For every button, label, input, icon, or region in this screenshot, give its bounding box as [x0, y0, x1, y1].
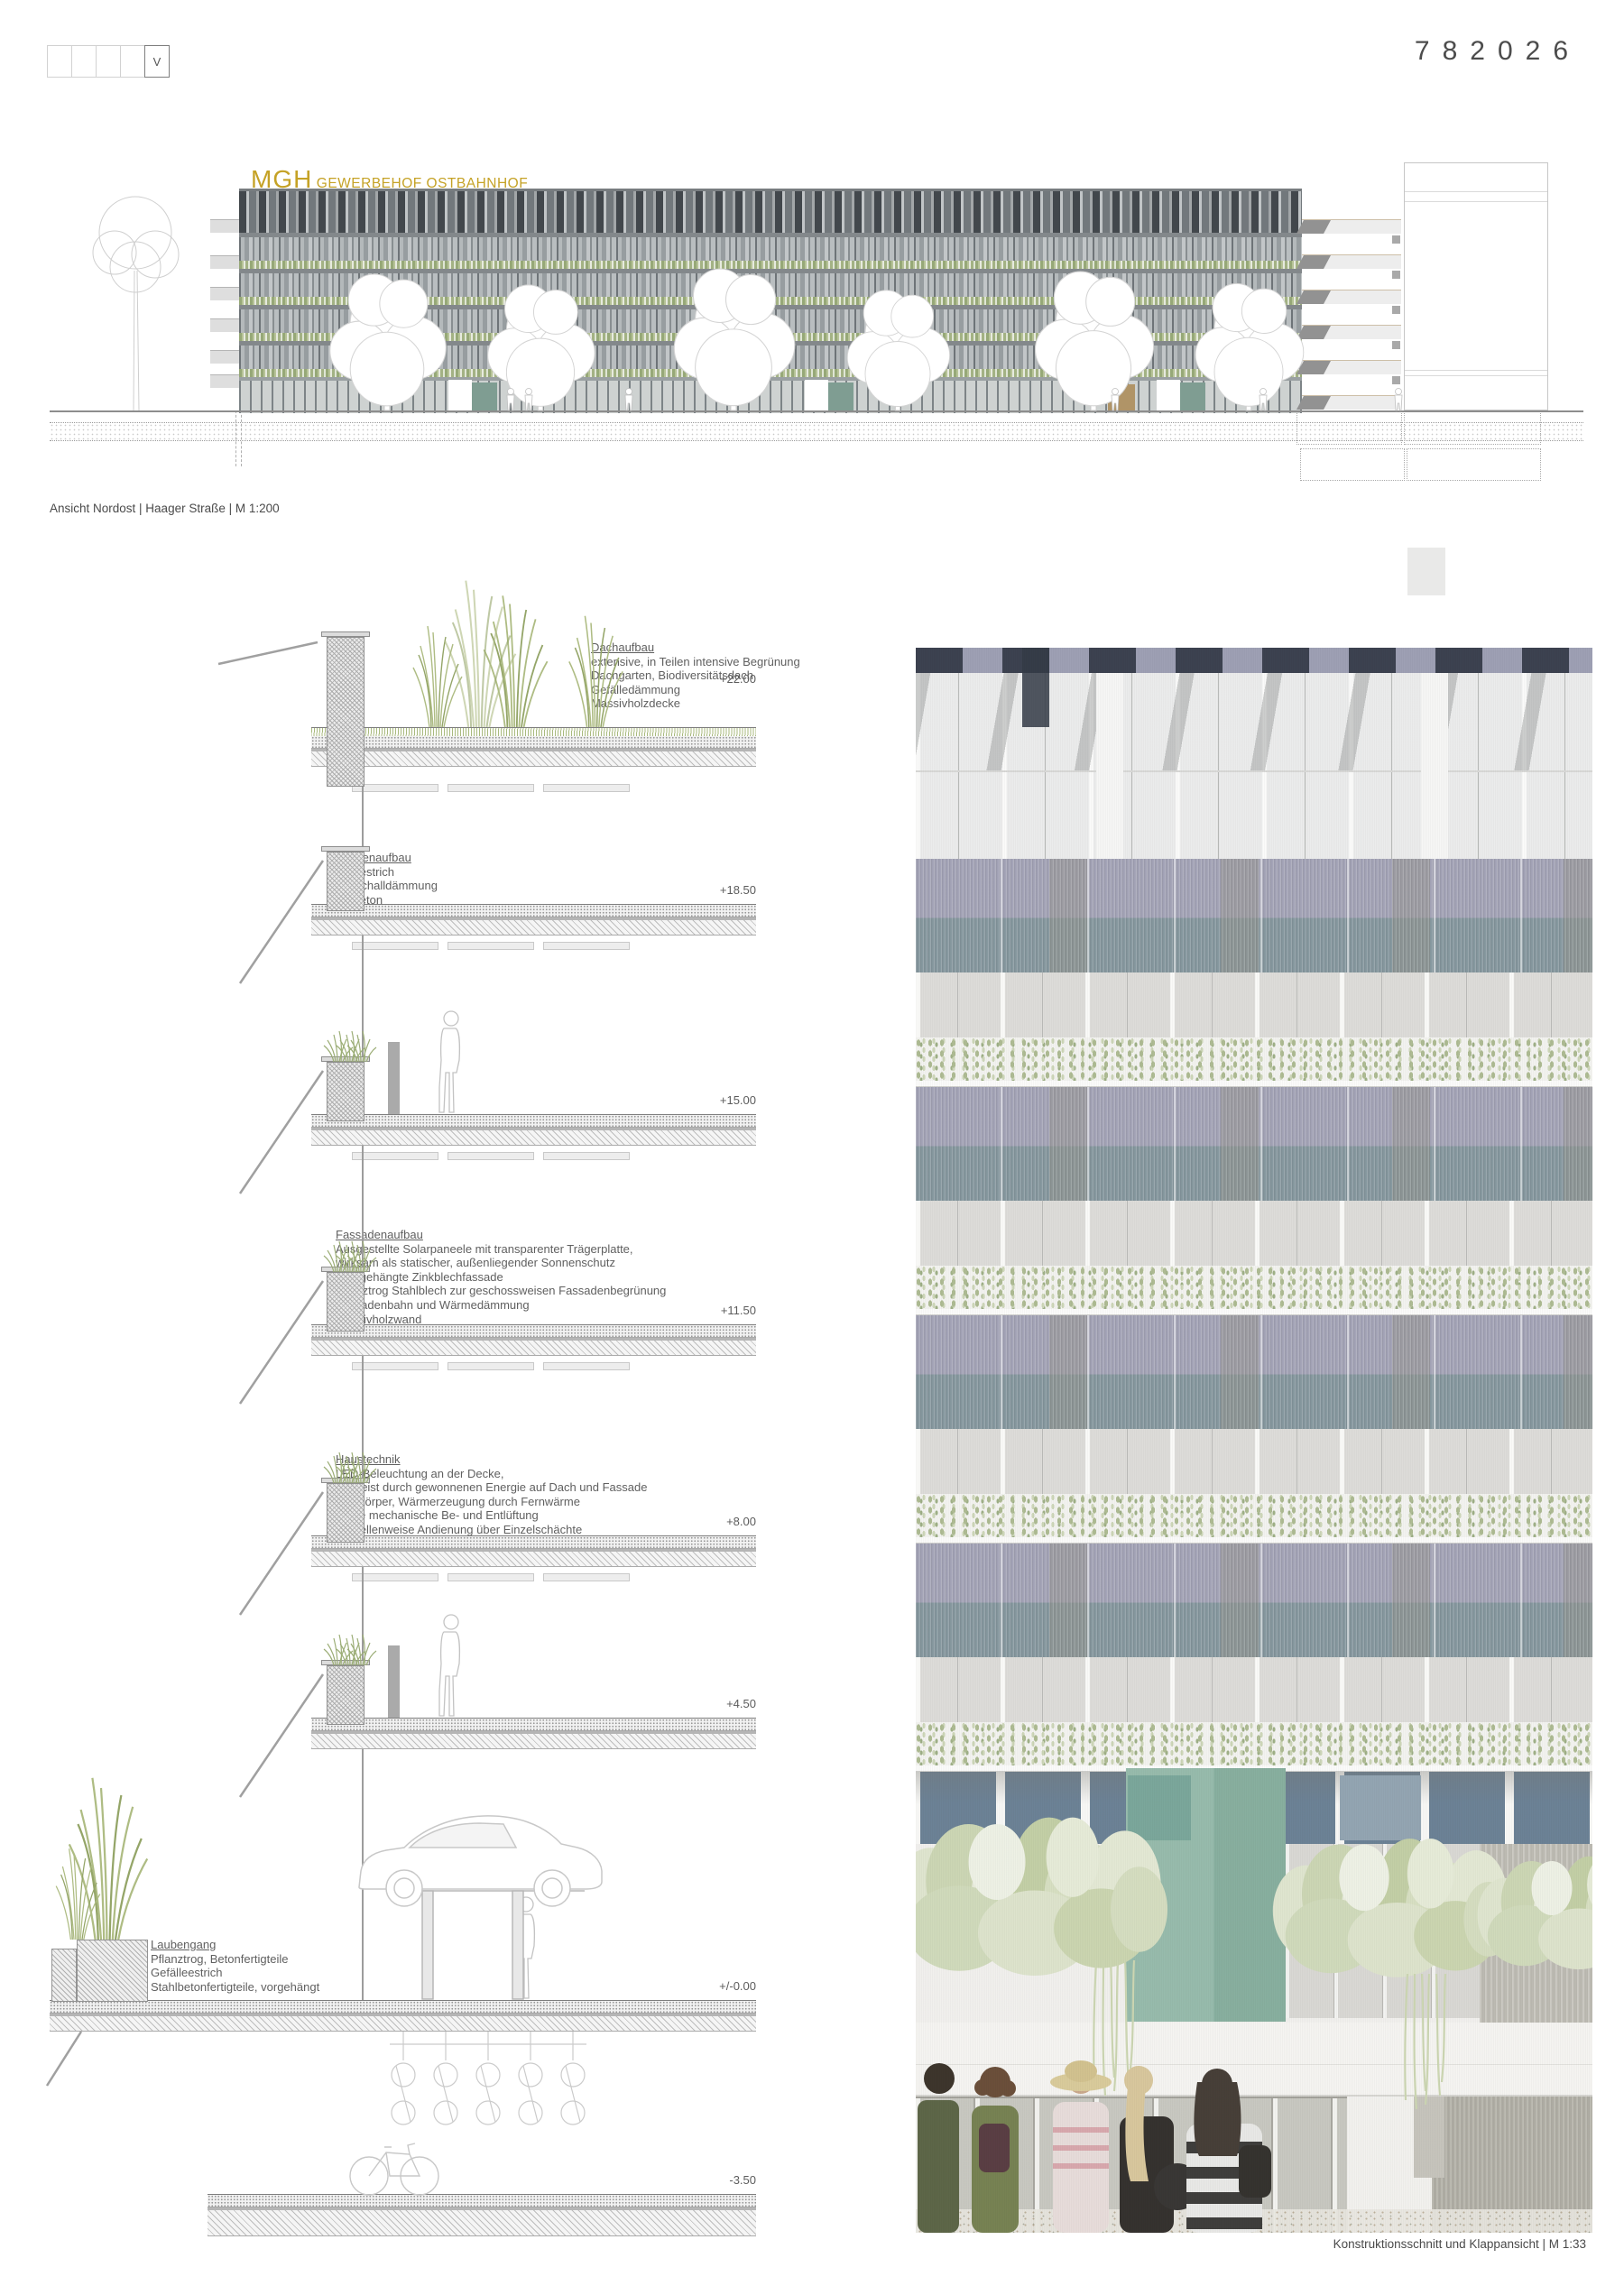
bicycle-outline: [350, 2143, 438, 2195]
revision-box: [71, 45, 97, 78]
terrace-plants: [916, 1818, 1167, 1976]
pedestrian-group: [918, 2060, 1271, 2233]
section-linework: [36, 568, 767, 2264]
pedestrian: [918, 2063, 959, 2233]
facade-rendering: [916, 648, 1592, 2233]
elevation-trees-overlay: [50, 158, 1583, 493]
building-sign-name: MGH: [251, 165, 312, 193]
building-sign: MGH GEWERBEHOF OSTBAHNHOF: [251, 165, 528, 194]
revision-label: V: [153, 55, 161, 69]
drawing-sheet: V 782026 MGH GEWERBEHOF OSTBAHNHOF: [0, 0, 1624, 2295]
bike-racks: [390, 2032, 586, 2124]
revision-boxes: V: [47, 45, 169, 78]
pedestrian: [1186, 2069, 1271, 2233]
street-tree-sketch: [93, 197, 179, 410]
revision-box: [47, 45, 72, 78]
revision-box: [96, 45, 121, 78]
terrace-plants: [1273, 1839, 1514, 1977]
render-foreground-overlay: [916, 648, 1592, 2233]
car-outline: [359, 1816, 602, 1999]
pedestrian: [1050, 2060, 1112, 2233]
gray-block: [1407, 548, 1445, 595]
revision-box-current: V: [144, 45, 170, 78]
pedestrian: [972, 2067, 1019, 2233]
revision-box: [120, 45, 145, 78]
building-sign-subtitle: GEWERBEHOF OSTBAHNHOF: [317, 176, 528, 191]
elevation-caption: Ansicht Nordost | Haager Straße | M 1:20…: [50, 502, 280, 515]
section-caption: Konstruktionsschnitt und Klappansicht | …: [1333, 2237, 1586, 2251]
entry-number: 782026: [1415, 36, 1581, 67]
